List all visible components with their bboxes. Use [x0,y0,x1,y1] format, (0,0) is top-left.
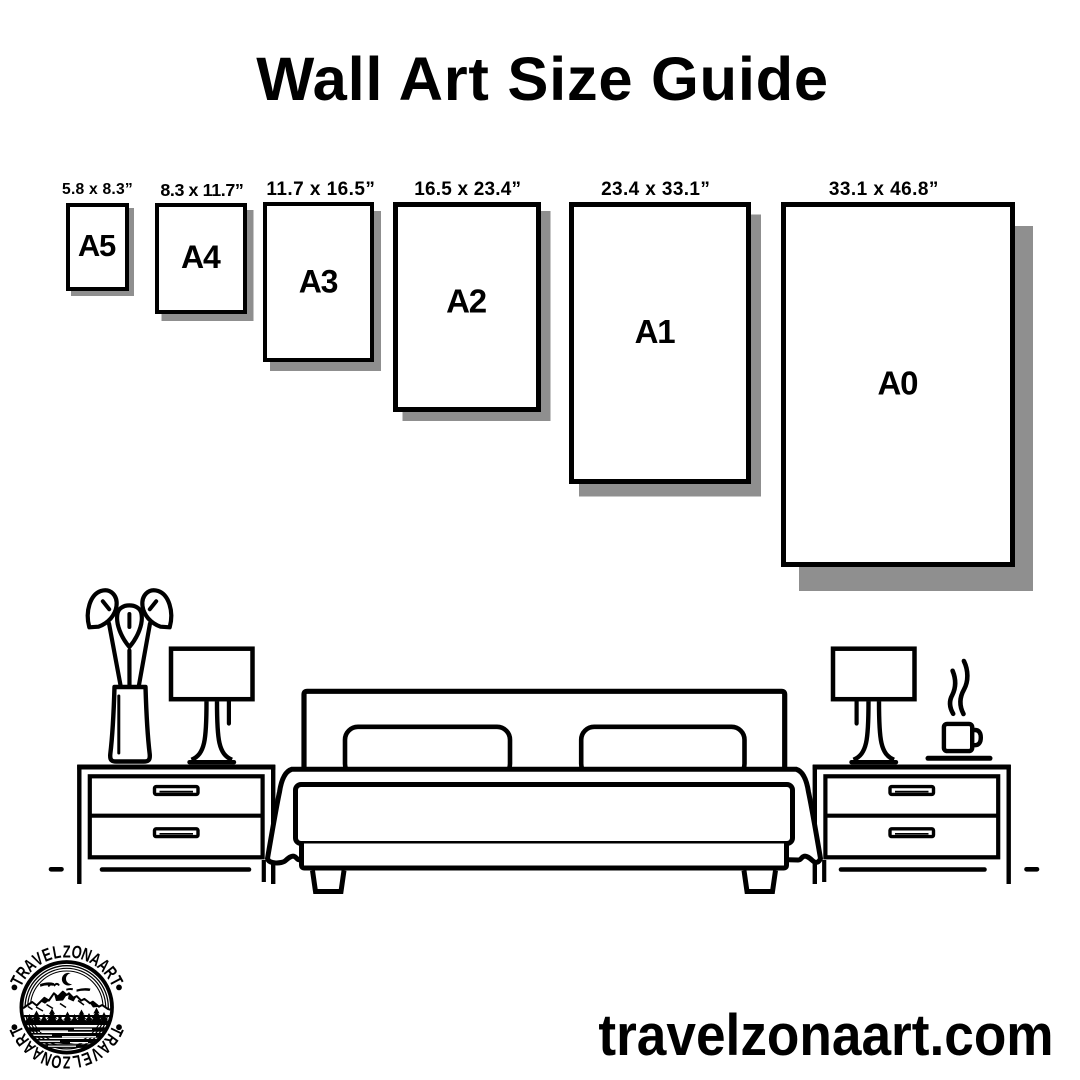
svg-text:Z: Z [62,1052,70,1072]
